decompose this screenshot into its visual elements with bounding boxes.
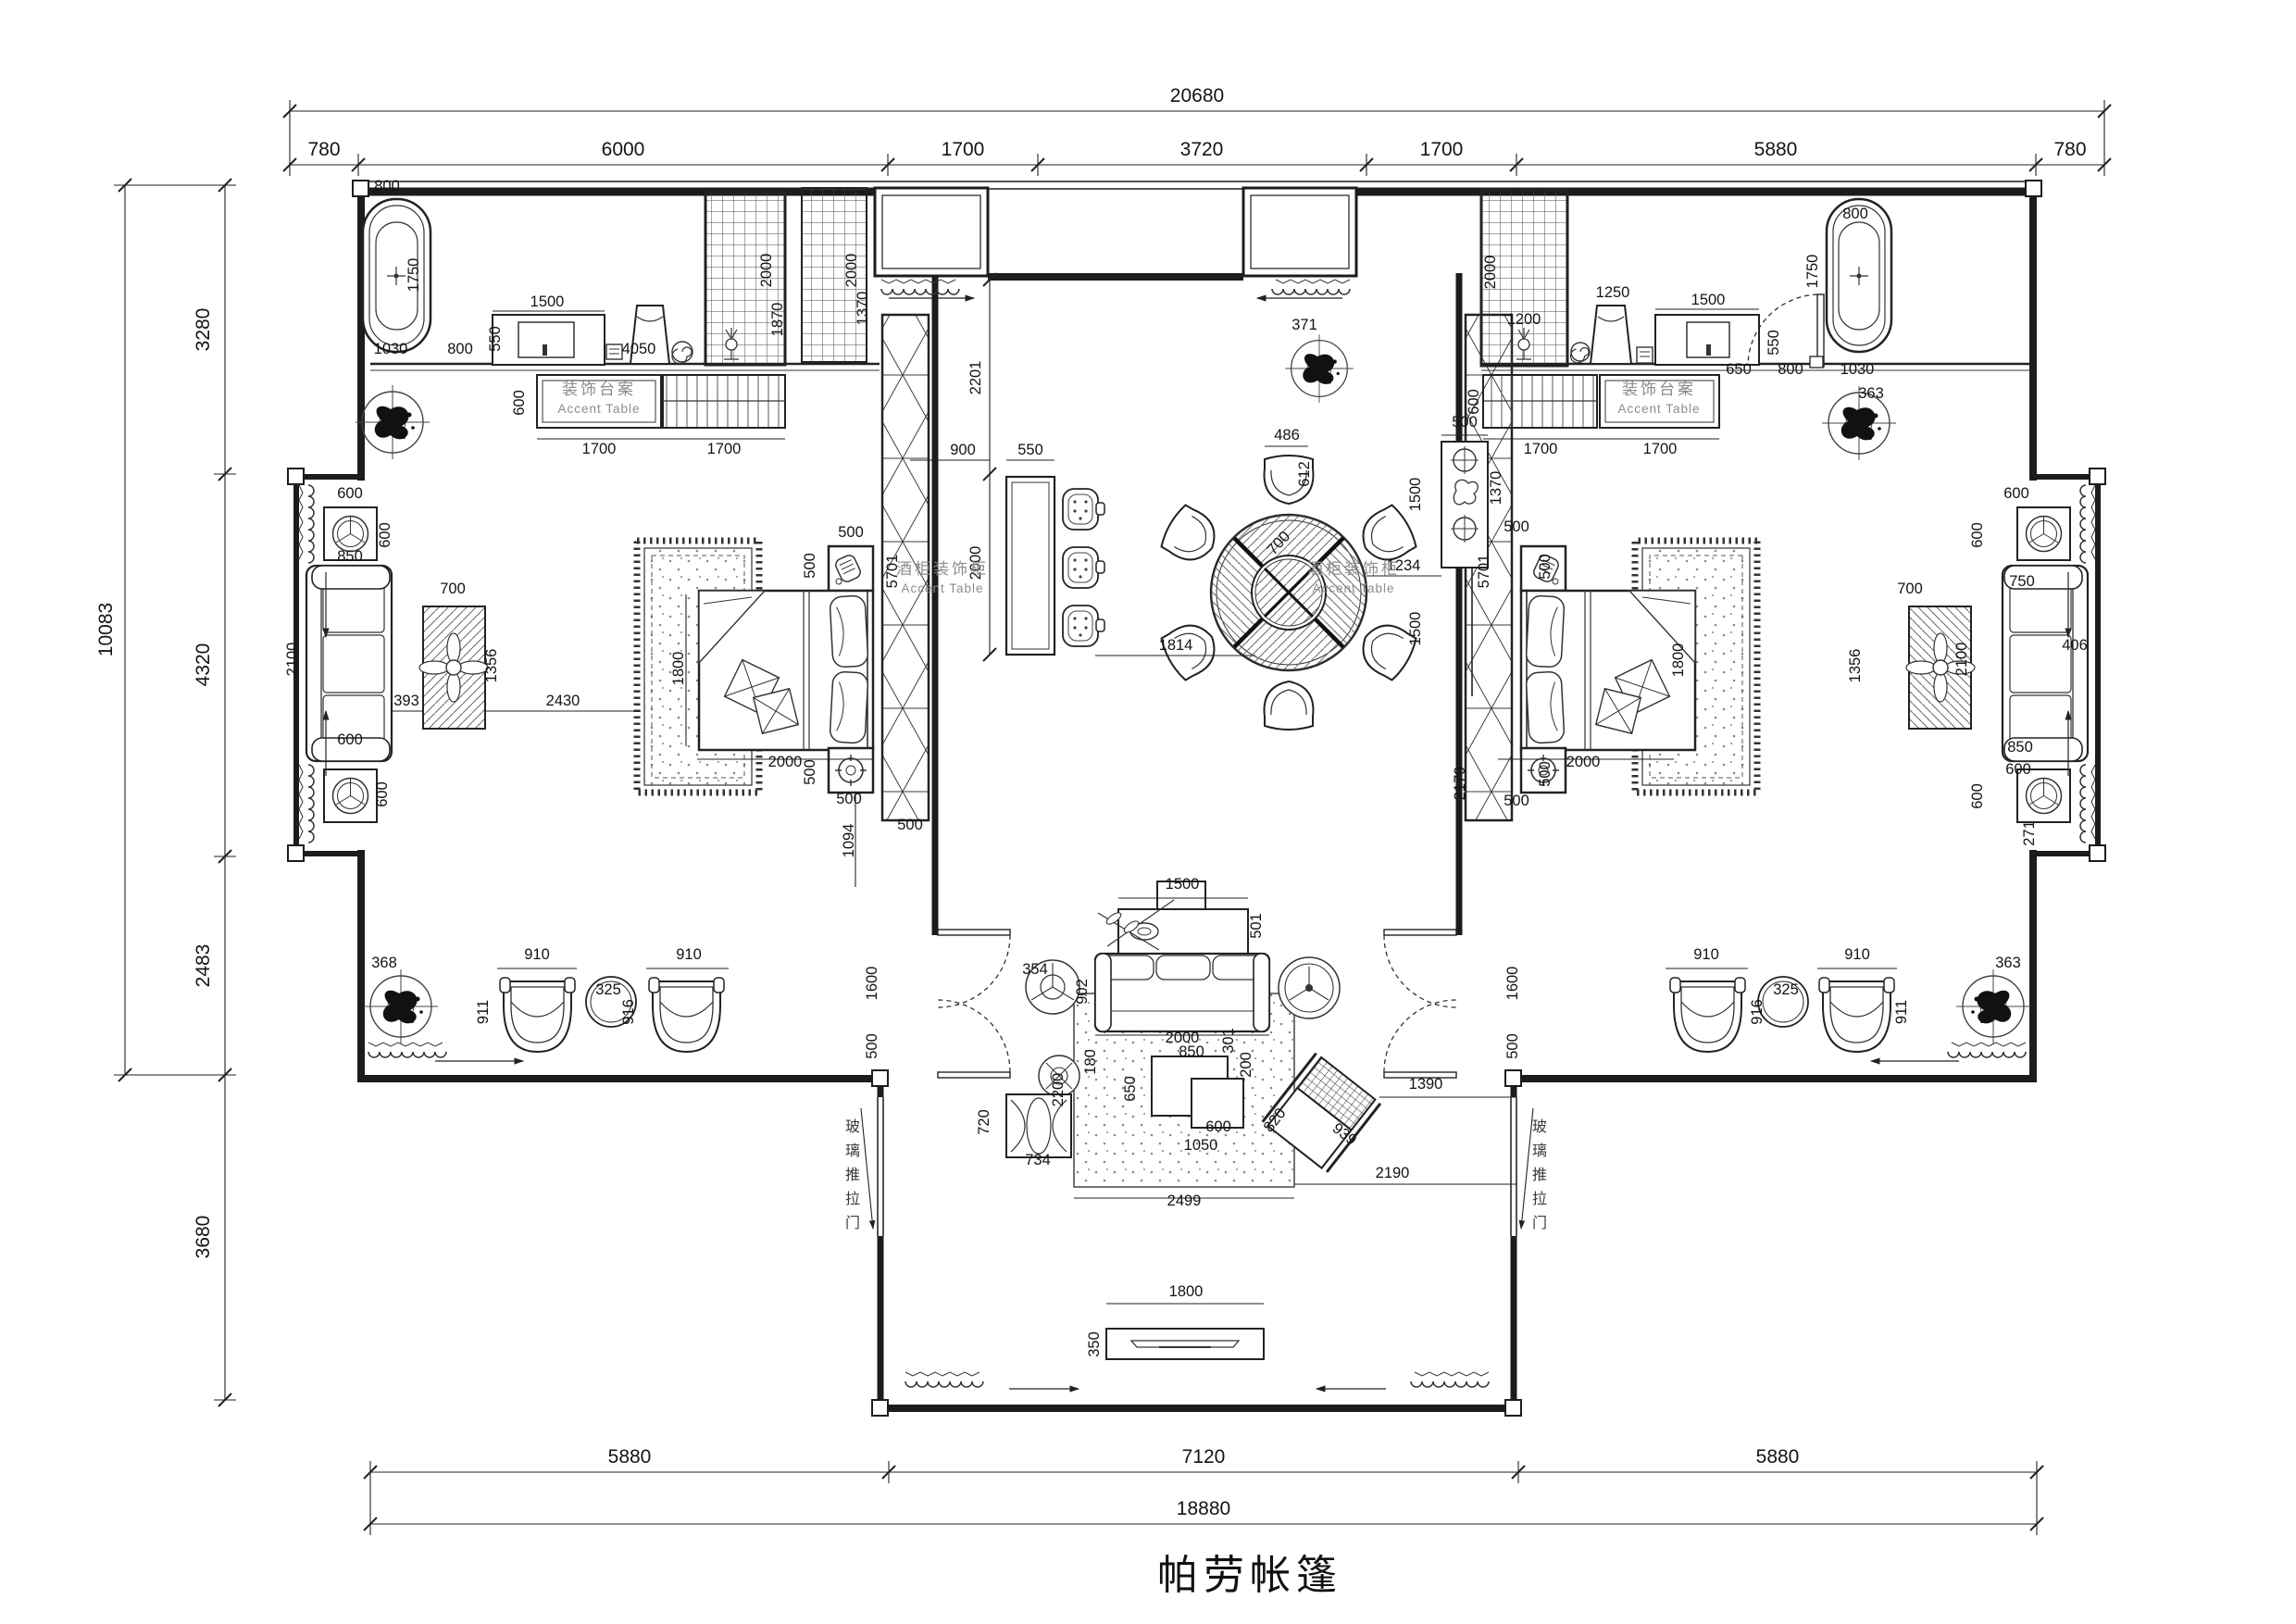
- dim-label: 600: [1205, 1118, 1231, 1135]
- dim-label: 800: [1842, 206, 1868, 222]
- dim-label: 354: [1022, 961, 1048, 978]
- dim-label: 600: [1969, 522, 1986, 548]
- dim-label: 2483: [193, 944, 214, 988]
- dim-label: 装饰台案: [562, 381, 636, 398]
- dim-label: 1814: [1159, 637, 1193, 654]
- dim-label: 325: [595, 981, 621, 998]
- dim-label: 1600: [864, 967, 880, 1001]
- dim-label: 6000: [602, 139, 645, 160]
- dim-label: 1700: [1643, 441, 1678, 457]
- dim-label: 500: [864, 1033, 880, 1059]
- dim-label: 1500: [1166, 876, 1200, 893]
- dim-label: 271: [2021, 820, 2038, 846]
- dim-label: 850: [2007, 739, 2033, 756]
- dim-label: 500: [1504, 518, 1529, 535]
- dim-label: 3720: [1180, 139, 1224, 160]
- dim-label: 500: [1537, 554, 1554, 580]
- curtain: [1411, 1372, 1489, 1387]
- dim-label: 1500: [530, 294, 565, 310]
- soap-dish: [1637, 347, 1653, 363]
- dim-label: 5880: [1754, 139, 1798, 160]
- dim-label: 1370: [855, 292, 871, 326]
- dim-label: 1356: [1847, 649, 1864, 683]
- dim-label: 910: [1693, 946, 1719, 963]
- dim-label: 850: [337, 548, 363, 565]
- tub-chair: [649, 978, 724, 1052]
- dim-label: 推: [1532, 1167, 1547, 1183]
- tub-chair: [500, 978, 575, 1052]
- tv-console: [1106, 1329, 1264, 1359]
- dim-label: 玻: [845, 1118, 860, 1135]
- dim-label: 500: [802, 759, 818, 785]
- dim-label: 18880: [1177, 1498, 1230, 1519]
- dim-label: 1750: [1804, 255, 1821, 289]
- dim-label: 600: [337, 485, 363, 502]
- dim-label: 5880: [608, 1446, 652, 1468]
- dim-label: 1500: [1407, 612, 1424, 646]
- floor-plan-page: 2068078060001700372017005880780100833280…: [0, 0, 2296, 1624]
- dim-label: 7120: [1182, 1446, 1226, 1468]
- dim-label: 180: [1082, 1049, 1099, 1075]
- dim-label: 1750: [406, 258, 422, 293]
- dim-label: 600: [2005, 761, 2031, 778]
- dining-chair: [1158, 503, 1225, 569]
- dim-label: 1500: [1691, 292, 1726, 308]
- dim-label: 600: [374, 781, 391, 807]
- dim-label: 800: [1778, 361, 1803, 378]
- dim-label: 911: [1893, 1000, 1910, 1024]
- dim-label: 拉: [1532, 1191, 1547, 1207]
- dim-label: 1700: [1524, 441, 1558, 457]
- bar-stool: [1063, 606, 1104, 646]
- dim-label: 700: [440, 581, 466, 597]
- dim-label: 550: [1017, 442, 1043, 458]
- plant-left-bath: [356, 385, 430, 459]
- glass-door-leader: [861, 1108, 873, 1229]
- dim-label: 800: [447, 341, 473, 357]
- dim-label: 700: [1897, 581, 1923, 597]
- dim-label: 325: [1773, 981, 1799, 998]
- dim-label: 750: [2009, 573, 2035, 590]
- dim-label: 20680: [1170, 85, 1224, 106]
- dim-label: 1500: [1407, 478, 1424, 512]
- dim-label: 734: [1025, 1152, 1051, 1168]
- dim-label: 550: [1766, 330, 1782, 356]
- entry-porch-right: [1243, 188, 1356, 276]
- dim-label: 1250: [1596, 284, 1630, 301]
- nightstand-bottom: [829, 748, 873, 793]
- dim-label: 910: [524, 946, 550, 963]
- dim-label: 363: [1858, 385, 1884, 402]
- dim-label: 900: [950, 442, 976, 458]
- dim-label: 2100: [284, 643, 301, 677]
- dim-label: 装饰台案: [1622, 381, 1696, 398]
- dim-label: 1800: [1670, 643, 1687, 678]
- plant-entry: [1285, 334, 1354, 403]
- dim-label: 911: [475, 1000, 492, 1024]
- dim-label: 1200: [1507, 311, 1541, 328]
- soap-dish: [606, 344, 622, 359]
- dim-label: 酒柜装饰柜: [896, 560, 989, 578]
- dim-label: 600: [2003, 485, 2029, 502]
- dim-label: 650: [1726, 361, 1752, 378]
- glass-sliding-door-left: [875, 1097, 886, 1236]
- dim-label: 1356: [483, 649, 500, 683]
- dim-label: 910: [1844, 946, 1870, 963]
- dim-label: 600: [337, 731, 363, 748]
- dim-label: 门: [845, 1215, 860, 1231]
- dim-label: 501: [1248, 913, 1265, 939]
- curtain: [881, 280, 959, 294]
- dim-label: 780: [2053, 139, 2086, 160]
- dim-label: 363: [1995, 955, 2021, 971]
- walls: [288, 181, 2105, 1416]
- dim-label: 2000: [768, 754, 803, 770]
- dim-label: 2430: [546, 693, 580, 709]
- dim-label: 5880: [1756, 1446, 1800, 1468]
- left-bathroom: [356, 188, 880, 459]
- dim-label: Accent Table: [557, 402, 640, 416]
- dim-label: Accent Table: [1617, 402, 1700, 416]
- dim-label: 600: [377, 522, 393, 548]
- dim-label: 2201: [967, 361, 984, 395]
- dim-label: 902: [1074, 979, 1091, 1005]
- dim-label: 500: [802, 553, 818, 579]
- dim-label: 500: [1504, 1033, 1521, 1059]
- dim-label: 600: [1466, 389, 1482, 415]
- bar-area: [1006, 477, 1104, 655]
- dim-label: 5701: [1476, 555, 1492, 589]
- dim-label: 393: [393, 693, 419, 709]
- bar-counter: [1006, 477, 1054, 655]
- drawer-cabinet-right: [1483, 375, 1597, 428]
- living-room: [861, 881, 1533, 1389]
- dim-label: 3280: [193, 308, 214, 352]
- dim-label: 4320: [193, 643, 214, 687]
- dim-label: 1390: [1409, 1076, 1443, 1093]
- dim-label: 2000: [843, 254, 860, 288]
- dim-label: 2000: [1566, 754, 1601, 770]
- dim-label: 2000: [758, 254, 775, 288]
- dim-label: 2200: [1050, 1073, 1067, 1107]
- curtain: [299, 485, 314, 563]
- dim-label: 500: [897, 817, 923, 833]
- curtain: [299, 765, 314, 843]
- dim-label: 600: [511, 390, 528, 416]
- glass-sliding-door-right: [1508, 1097, 1519, 1236]
- bar-stool: [1063, 489, 1104, 530]
- dim-label: 1800: [1169, 1283, 1204, 1300]
- dim-label: 800: [374, 178, 400, 194]
- dim-label: 1030: [374, 341, 408, 357]
- vanity-right: [1655, 315, 1759, 365]
- dim-label: 玻: [1532, 1118, 1547, 1135]
- dim-label: 2179: [1452, 767, 1468, 801]
- dim-label: 780: [307, 139, 340, 160]
- dim-label: 500: [1504, 793, 1529, 809]
- nightstand-top: [829, 546, 873, 591]
- bay-side-table-bottom: [324, 769, 377, 822]
- towel-swirl: [1571, 343, 1590, 363]
- dim-label: 650: [1122, 1076, 1139, 1102]
- entry-porch-left: [875, 188, 988, 276]
- dim-label: 10083: [95, 603, 117, 656]
- double-door: [938, 930, 1010, 1078]
- dim-label: 1370: [1488, 471, 1504, 506]
- dim-label: 406: [2062, 637, 2088, 654]
- bed: [699, 591, 873, 750]
- dim-label: 推: [845, 1167, 860, 1183]
- dim-label: 1030: [1841, 361, 1875, 378]
- dim-label: 1700: [582, 441, 617, 457]
- side-table-round: [1279, 957, 1340, 1018]
- dim-label: 916: [620, 999, 637, 1025]
- dim-label: 486: [1274, 427, 1300, 443]
- bar-stool: [1063, 547, 1104, 588]
- dim-label: 3680: [193, 1216, 214, 1259]
- dim-label: 500: [838, 524, 864, 541]
- dim-label: 拉: [845, 1191, 860, 1207]
- dim-label: 酒柜装饰柜: [1307, 560, 1400, 578]
- dim-label: 1600: [1504, 967, 1521, 1001]
- curtain: [905, 1372, 983, 1387]
- dim-label: Accent Table: [1312, 581, 1394, 595]
- dim-label: 2100: [1953, 643, 1970, 677]
- curtain: [1272, 280, 1350, 294]
- dim-label: 4050: [622, 341, 656, 357]
- towel-swirl: [672, 342, 693, 364]
- dim-label: 916: [1749, 999, 1766, 1025]
- dim-label: 2190: [1376, 1165, 1410, 1181]
- corner-posts: [288, 181, 2105, 1416]
- dim-label: 550: [487, 326, 504, 352]
- floor-plan-svg: 2068078060001700372017005880780100833280…: [0, 0, 2296, 1624]
- dim-label: 301: [1220, 1028, 1237, 1054]
- dim-label: Accent Table: [901, 581, 983, 595]
- drawer-cabinet-left: [663, 375, 785, 428]
- dim-label: 门: [1532, 1215, 1547, 1231]
- dim-label: 璃: [1532, 1143, 1547, 1159]
- dim-label: 500: [1537, 761, 1554, 787]
- dim-label: 1050: [1184, 1137, 1218, 1154]
- drawing-title: 帕劳帐篷: [1157, 1553, 1342, 1598]
- right-wing-furniture: [1384, 315, 2095, 1078]
- bay-coffee-table: [419, 606, 488, 729]
- dim-label: 850: [1179, 1043, 1204, 1060]
- dim-label: 璃: [845, 1143, 860, 1159]
- dim-label: 1870: [769, 303, 786, 337]
- dim-label: 1700: [942, 139, 985, 160]
- dim-label: 200: [1238, 1052, 1254, 1078]
- dim-label: 350: [1086, 1331, 1103, 1357]
- sofa: [1095, 954, 1269, 1031]
- dim-label: 371: [1291, 317, 1317, 333]
- dim-label: 612: [1296, 461, 1313, 487]
- dim-label: 600: [1969, 783, 1986, 809]
- dining-chair: [1265, 681, 1314, 730]
- curtain: [368, 1043, 446, 1057]
- dim-label: 1700: [707, 441, 742, 457]
- stool-right: [1591, 306, 1631, 364]
- dim-label: 2000: [1482, 256, 1499, 290]
- dim-label: 720: [976, 1109, 992, 1135]
- dim-label: 500: [1452, 414, 1478, 431]
- right-bathroom: [1481, 190, 2029, 460]
- dim-label: 1700: [1420, 139, 1464, 160]
- vanity-left: [493, 315, 605, 365]
- dim-label: 910: [676, 946, 702, 963]
- dim-label: 1800: [670, 652, 687, 686]
- dim-label: 1094: [841, 824, 857, 858]
- dim-label: 2499: [1167, 1193, 1202, 1209]
- dim-label: 368: [371, 955, 397, 971]
- dim-label: 500: [836, 791, 862, 807]
- plant: [364, 969, 438, 1043]
